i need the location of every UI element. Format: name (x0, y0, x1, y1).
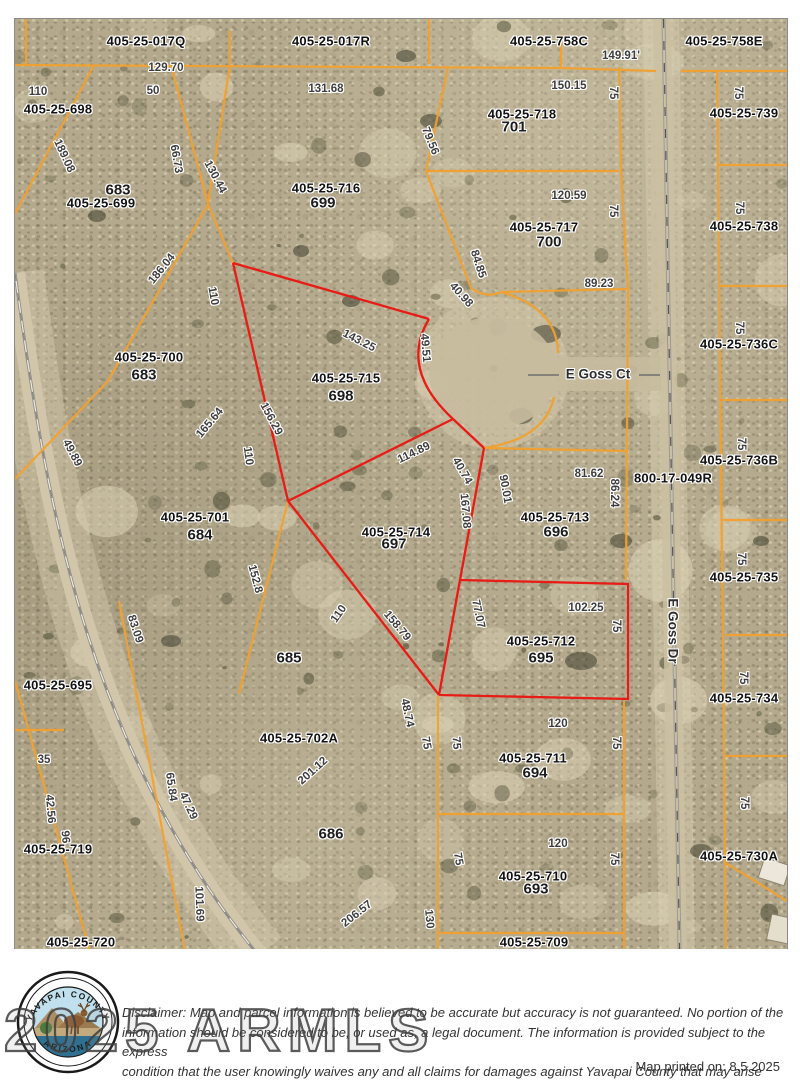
dimension-label: 167.08 (457, 493, 472, 529)
dimension-label: 75 (737, 672, 749, 685)
dimension-label: 129.70 (148, 62, 183, 74)
dimension-label: 101.69 (192, 886, 205, 922)
dimension-label: 120 (548, 838, 567, 850)
dimension-label: 75 (608, 853, 620, 866)
parcel-apn-label: 405-25-017Q (107, 34, 186, 49)
street-name-label: E Goss Dr (666, 598, 681, 663)
parcel-number-label: 699 (310, 195, 335, 212)
parcel-apn-label: 405-25-758E (685, 34, 762, 49)
parcel-number-label: 700 (536, 234, 561, 251)
parcel-apn-label: 405-25-719 (24, 842, 93, 857)
print-date: Map printed on: 8.5.2025 (635, 1059, 780, 1074)
parcel-apn-label: 405-25-709 (500, 935, 569, 950)
dimension-label: 75 (610, 620, 622, 633)
parcel-apn-label: 405-25-758C (510, 34, 588, 49)
parcel-apn-label: 405-25-715 (312, 371, 381, 386)
dimension-label: 189.08 (51, 138, 77, 175)
dimension-label: 75 (607, 205, 619, 218)
parcel-apn-label: 405-25-695 (24, 678, 93, 693)
parcel-apn-label: 405-25-702A (260, 731, 338, 746)
dimension-label: 206.57 (339, 898, 374, 929)
parcel-apn-label: 405-25-738 (710, 219, 779, 234)
dimension-label: 75 (735, 438, 747, 451)
dimension-label: 75 (449, 736, 462, 750)
parcel-apn-label: 405-25-736C (700, 337, 778, 352)
dimension-label: 120.59 (551, 190, 586, 202)
dimension-label: 84.85 (468, 248, 488, 279)
dimension-label: 150.15 (551, 80, 586, 92)
map-labels: 405-25-017Q405-25-017R405-25-758C405-25-… (15, 19, 787, 949)
dimension-label: 75 (738, 797, 750, 810)
dimension-label: 75 (735, 553, 747, 566)
dimension-label: 83.09 (125, 613, 145, 644)
map-footer: YAVAPAI COUNTY ARIZONA 2025 ARMLS Discla… (0, 949, 800, 1083)
parcel-apn-label: 405-25-717 (510, 220, 579, 235)
dimension-label: 49.51 (418, 333, 432, 363)
parcel-apn-label: 405-25-701 (161, 510, 230, 525)
dimension-label: 152.8 (245, 564, 264, 595)
parcel-apn-label: 405-25-713 (521, 510, 590, 525)
dimension-label: 75 (419, 736, 433, 751)
dimension-label: 149.91' (602, 50, 640, 62)
parcel-number-label: 693 (523, 881, 548, 898)
dimension-label: 75 (733, 322, 745, 335)
parcel-apn-label: 405-25-735 (710, 570, 779, 585)
dimension-label: 156.29 (257, 401, 284, 438)
dimension-label: 165.64 (194, 406, 226, 441)
street-name-label: E Goss Ct (566, 367, 631, 382)
dimension-label: 77.07 (469, 599, 487, 630)
dimension-label: 96 (58, 830, 71, 844)
dimension-label: 186.04 (146, 252, 177, 287)
dimension-label: 120 (548, 718, 567, 730)
parcel-number-label: 683 (105, 182, 130, 199)
parcel-apn-label: 405-25-736B (700, 453, 778, 468)
parcel-number-label: 695 (528, 650, 553, 667)
dimension-label: 48.74 (398, 698, 416, 729)
dimension-label: 50 (147, 85, 160, 97)
parcel-number-label: 686 (318, 826, 343, 843)
dimension-label: 143.25 (341, 328, 378, 355)
dimension-label: 110 (29, 86, 48, 98)
dimension-label: 81.62 (575, 468, 604, 480)
dimension-label: 75 (733, 202, 745, 215)
dimension-label: 130 (422, 909, 436, 929)
dimension-label: 75 (610, 737, 622, 750)
parcel-number-label: 696 (543, 524, 568, 541)
parcel-number-label: 683 (131, 367, 156, 384)
parcel-apn-label: 405-25-712 (507, 634, 576, 649)
parcel-apn-label: 405-25-700 (115, 350, 184, 365)
dimension-label: 102.25 (568, 602, 603, 614)
dimension-label: 158.79 (381, 609, 413, 644)
parcel-apn-label: 405-25-017R (292, 34, 370, 49)
document-page: 405-25-017Q405-25-017R405-25-758C405-25-… (0, 0, 800, 1083)
dimension-label: 75 (607, 87, 619, 100)
parcel-number-label: 698 (328, 388, 353, 405)
dimension-label: 110 (329, 603, 349, 625)
parcel-map: 405-25-017Q405-25-017R405-25-758C405-25-… (14, 18, 788, 950)
dimension-label: 110 (205, 286, 220, 306)
armls-watermark: 2025 ARMLS (4, 1001, 435, 1061)
dimension-label: 89.23 (585, 278, 614, 290)
parcel-number-label: 694 (522, 765, 547, 782)
parcel-apn-label: 800-17-049R (634, 471, 712, 486)
parcel-apn-label: 405-25-716 (292, 181, 361, 196)
parcel-number-label: 684 (187, 527, 212, 544)
dimension-label: 49.89 (60, 437, 84, 468)
dimension-label: 131.68 (308, 83, 343, 95)
parcel-number-label: 697 (381, 536, 406, 553)
dimension-label: 110 (241, 446, 255, 466)
dimension-label: 40.98 (447, 280, 475, 309)
parcel-apn-label: 405-25-720 (47, 935, 116, 950)
dimension-label: 86.24 (608, 479, 620, 508)
dimension-label: 79.56 (419, 125, 441, 156)
parcel-apn-label: 405-25-734 (710, 691, 779, 706)
parcel-apn-label: 405-25-698 (24, 102, 93, 117)
dimension-label: 35 (38, 754, 51, 766)
dimension-label: 90.01 (497, 474, 514, 504)
dimension-label: 47.29 (176, 790, 199, 821)
dimension-label: 42.56 (43, 794, 57, 824)
parcel-apn-label: 405-25-730A (700, 849, 778, 864)
dimension-label: 75 (451, 852, 465, 867)
dimension-label: 66.73 (168, 144, 185, 174)
parcel-apn-label: 405-25-711 (499, 751, 567, 766)
dimension-label: 130.44 (201, 159, 228, 196)
parcel-apn-label: 405-25-739 (710, 106, 779, 121)
dimension-label: 40.74 (450, 456, 475, 487)
dimension-label: 114.89 (396, 440, 432, 466)
parcel-number-label: 701 (501, 119, 526, 136)
parcel-number-label: 685 (276, 650, 301, 667)
dimension-label: 201.12 (296, 755, 330, 787)
dimension-label: 75 (732, 87, 744, 100)
